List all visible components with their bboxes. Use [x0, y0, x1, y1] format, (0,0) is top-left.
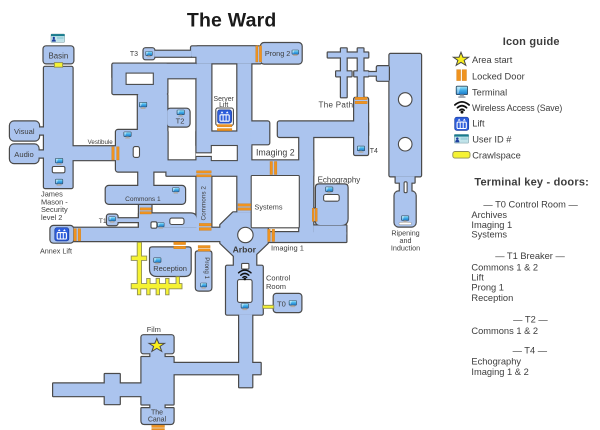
svg-text:Imaging 2: Imaging 2 — [256, 148, 295, 158]
svg-text:The Ward: The Ward — [187, 9, 277, 31]
svg-text:Visual: Visual — [14, 127, 35, 136]
svg-text:Commons 1 & 2: Commons 1 & 2 — [471, 326, 538, 336]
svg-text:Basin: Basin — [49, 52, 69, 61]
svg-text:Prong 2: Prong 2 — [265, 49, 291, 58]
svg-text:Icon guide: Icon guide — [503, 36, 560, 48]
svg-text:Echography: Echography — [471, 357, 521, 367]
svg-text:Vestibule: Vestibule — [88, 139, 114, 146]
svg-text:Annex Lift: Annex Lift — [40, 247, 72, 256]
svg-text:— T2 —: — T2 — — [513, 315, 548, 325]
svg-text:— T1 Breaker —: — T1 Breaker — — [495, 251, 565, 261]
svg-text:T1: T1 — [99, 218, 107, 225]
svg-text:The: The — [151, 410, 163, 417]
svg-text:Arbor: Arbor — [233, 245, 257, 255]
svg-text:Commons 1: Commons 1 — [125, 196, 161, 203]
svg-text:User ID #: User ID # — [472, 134, 512, 144]
svg-text:Systems: Systems — [255, 202, 283, 211]
svg-text:Terminal: Terminal — [472, 88, 507, 98]
svg-text:Commons 2: Commons 2 — [201, 186, 208, 221]
svg-text:T3: T3 — [130, 51, 138, 58]
svg-text:Canal: Canal — [148, 417, 167, 424]
svg-text:Imaging 1: Imaging 1 — [471, 220, 512, 230]
svg-text:Echography: Echography — [318, 175, 361, 184]
svg-text:Lift: Lift — [471, 272, 484, 282]
svg-text:Reception: Reception — [153, 264, 187, 273]
svg-text:Lift: Lift — [219, 102, 228, 109]
svg-text:Induction: Induction — [391, 244, 420, 253]
svg-text:Room: Room — [266, 282, 286, 291]
svg-text:Reception: Reception — [471, 293, 513, 303]
svg-text:Imaging 1 & 2: Imaging 1 & 2 — [471, 367, 528, 377]
svg-text:Terminal key - doors:: Terminal key - doors: — [474, 177, 589, 189]
svg-text:— T4 —: — T4 — — [513, 346, 548, 356]
svg-text:Locked Door: Locked Door — [472, 71, 525, 81]
svg-text:Prong 1: Prong 1 — [203, 257, 210, 279]
svg-text:Commons 1 & 2: Commons 1 & 2 — [471, 262, 538, 272]
svg-text:Area start: Area start — [472, 55, 513, 65]
svg-text:T0: T0 — [277, 300, 286, 309]
svg-text:T2: T2 — [176, 116, 185, 125]
svg-text:Prong 1: Prong 1 — [471, 283, 504, 293]
svg-text:Audio: Audio — [14, 150, 33, 159]
svg-text:— T0 Control Room —: — T0 Control Room — — [483, 200, 578, 210]
svg-text:Systems: Systems — [471, 230, 507, 240]
svg-text:Archives: Archives — [471, 210, 507, 220]
svg-text:Wireless Access (Save): Wireless Access (Save) — [472, 103, 562, 113]
svg-text:Crawlspace: Crawlspace — [472, 150, 521, 160]
svg-text:The Path: The Path — [319, 101, 354, 110]
svg-text:Film: Film — [147, 325, 161, 334]
svg-text:level 2: level 2 — [41, 213, 62, 222]
svg-text:Imaging 1: Imaging 1 — [271, 243, 304, 252]
svg-text:T4: T4 — [370, 148, 378, 155]
svg-text:Lift: Lift — [472, 119, 485, 129]
